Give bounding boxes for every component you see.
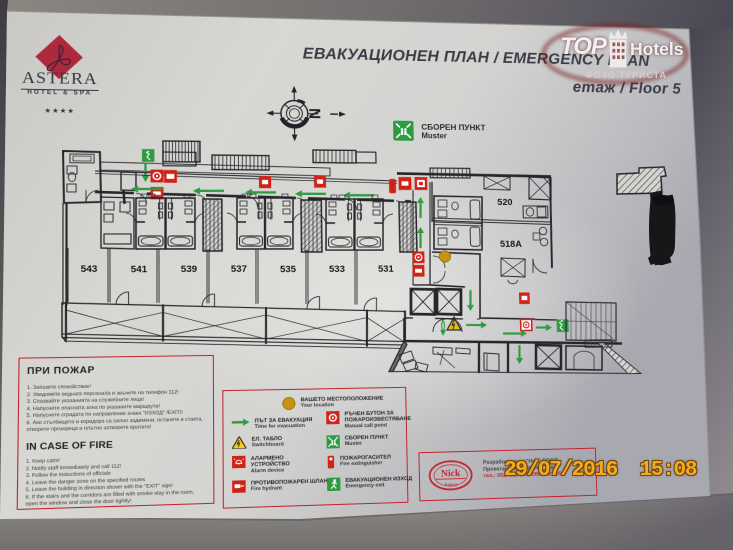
svg-text:520: 520 (497, 198, 512, 208)
svg-text:543: 543 (81, 264, 99, 275)
svg-text:518A: 518A (500, 239, 522, 249)
svg-text:541: 541 (131, 264, 148, 275)
svg-text:537: 537 (231, 264, 247, 275)
svg-text:535: 535 (280, 264, 297, 275)
svg-text:533: 533 (329, 264, 346, 275)
svg-text:Варна: Варна (445, 482, 458, 487)
svg-text:531: 531 (378, 264, 394, 275)
svg-text:539: 539 (181, 264, 197, 275)
svg-text:Nick: Nick (441, 468, 461, 479)
